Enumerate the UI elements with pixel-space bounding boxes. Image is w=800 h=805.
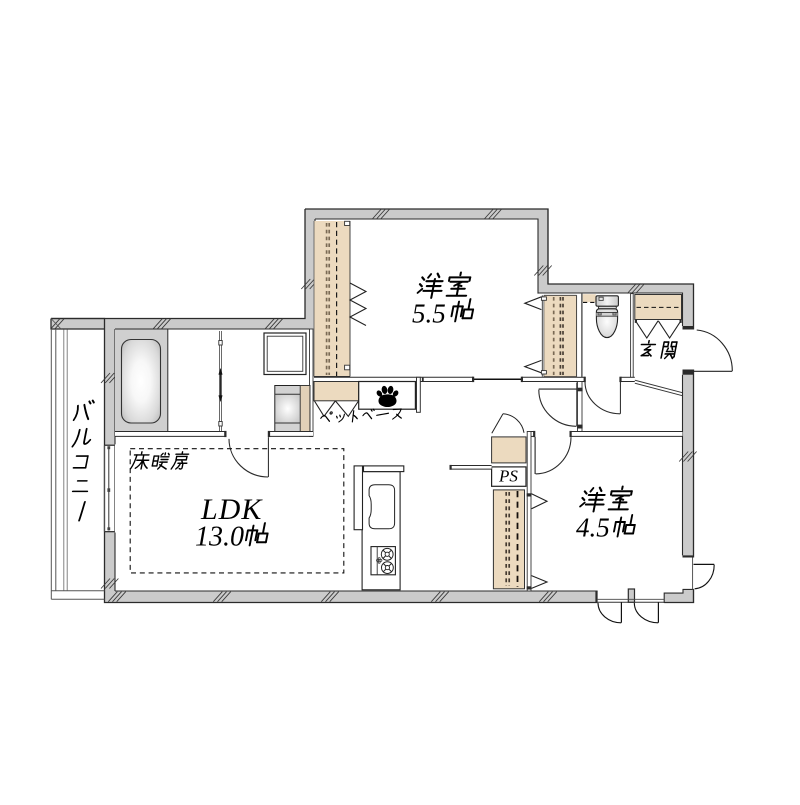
svg-text:5.5: 5.5 [412, 299, 446, 329]
svg-text:PS: PS [498, 467, 518, 486]
svg-text:4.5: 4.5 [576, 513, 610, 543]
svg-text:13.0: 13.0 [195, 522, 244, 553]
